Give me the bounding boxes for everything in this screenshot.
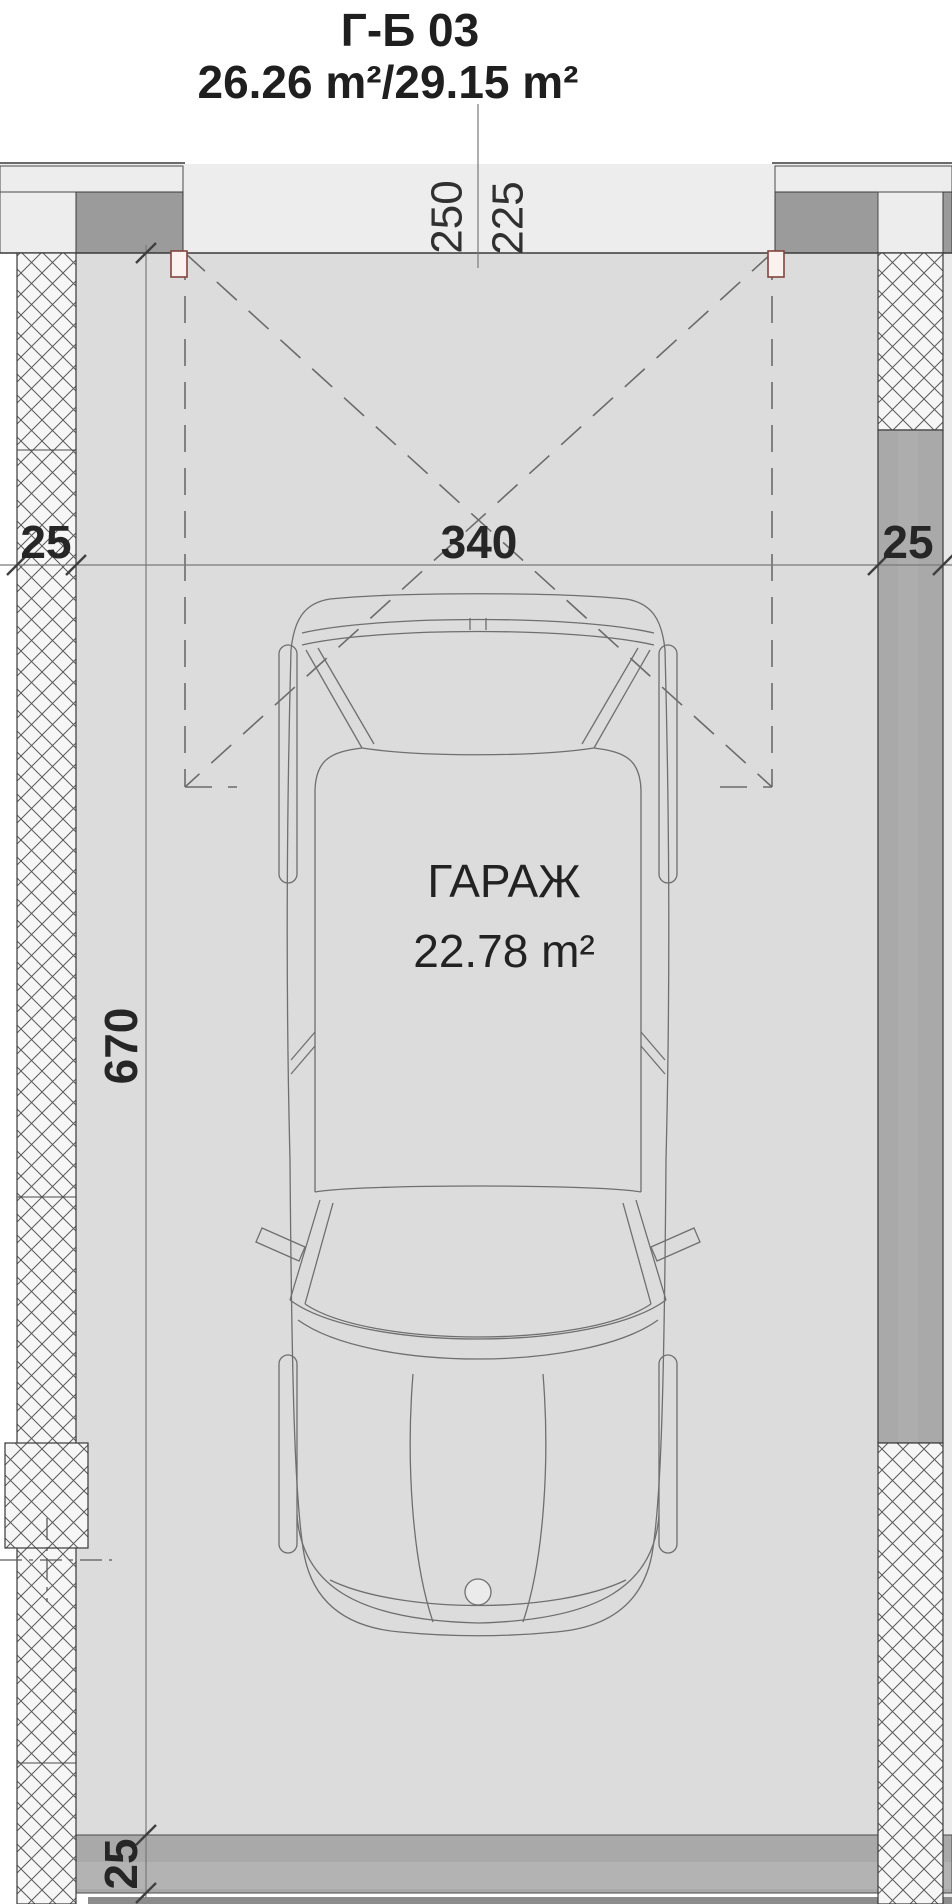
floor-plan-page: Г-Б 03 26.26 m²/29.15 m² 250 225 25 340 … <box>0 0 952 1904</box>
right-edge-strip <box>943 253 952 1898</box>
door-pier-right <box>775 192 878 253</box>
door-jamb-right <box>768 251 784 277</box>
dim-depth-label: 670 <box>95 1008 147 1085</box>
dim-225-label: 225 <box>484 181 533 254</box>
dim-rear-wall-label: 25 <box>95 1838 147 1889</box>
floor-plan-drawing: Г-Б 03 26.26 m²/29.15 m² 250 225 25 340 … <box>0 0 952 1904</box>
door-pier-left <box>76 192 183 253</box>
plan-title: Г-Б 03 <box>341 4 479 56</box>
plan-area-summary: 26.26 m²/29.15 m² <box>197 56 578 108</box>
dim-250-label: 250 <box>423 180 472 253</box>
car-emblem <box>465 1579 491 1605</box>
dim-left-wall-label: 25 <box>20 516 71 568</box>
bottom-edge-bar <box>88 1897 952 1904</box>
dim-opening-label: 340 <box>441 516 518 568</box>
right-wall <box>878 253 943 1904</box>
door-jamb-left <box>171 251 187 277</box>
dim-right-wall-label: 25 <box>882 516 933 568</box>
room-area-label: 22.78 m² <box>413 925 595 977</box>
room-name-label: ГАРАЖ <box>427 855 580 907</box>
